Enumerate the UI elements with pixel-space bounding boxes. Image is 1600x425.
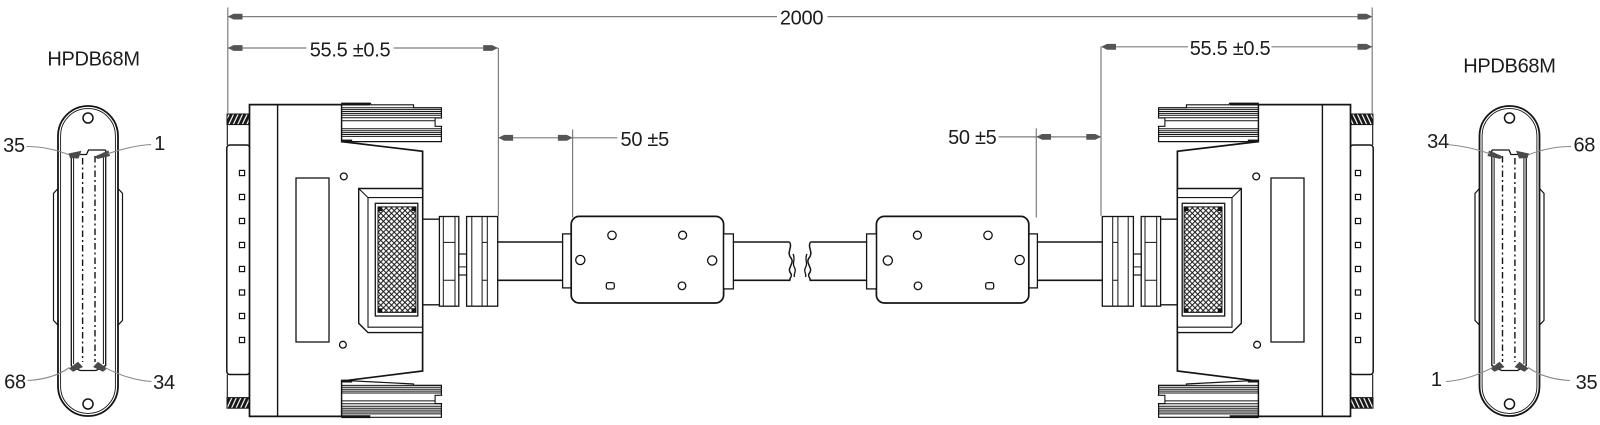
svg-text:2000: 2000 [780, 8, 823, 30]
svg-text:68: 68 [4, 372, 26, 394]
svg-text:HPDB68M: HPDB68M [47, 48, 139, 70]
svg-text:35: 35 [1576, 372, 1598, 394]
svg-text:55.5 ±0.5: 55.5 ±0.5 [1190, 38, 1271, 60]
svg-text:35: 35 [3, 135, 25, 157]
svg-text:34: 34 [1427, 131, 1449, 153]
svg-text:50 ±5: 50 ±5 [948, 127, 997, 149]
svg-text:55.5 ±0.5: 55.5 ±0.5 [310, 40, 391, 62]
svg-text:HPDB68M: HPDB68M [1463, 55, 1555, 77]
svg-text:50 ±5: 50 ±5 [621, 129, 670, 151]
svg-text:34: 34 [153, 372, 175, 394]
svg-text:1: 1 [154, 133, 165, 155]
svg-text:1: 1 [1431, 369, 1442, 391]
svg-text:68: 68 [1573, 135, 1595, 157]
